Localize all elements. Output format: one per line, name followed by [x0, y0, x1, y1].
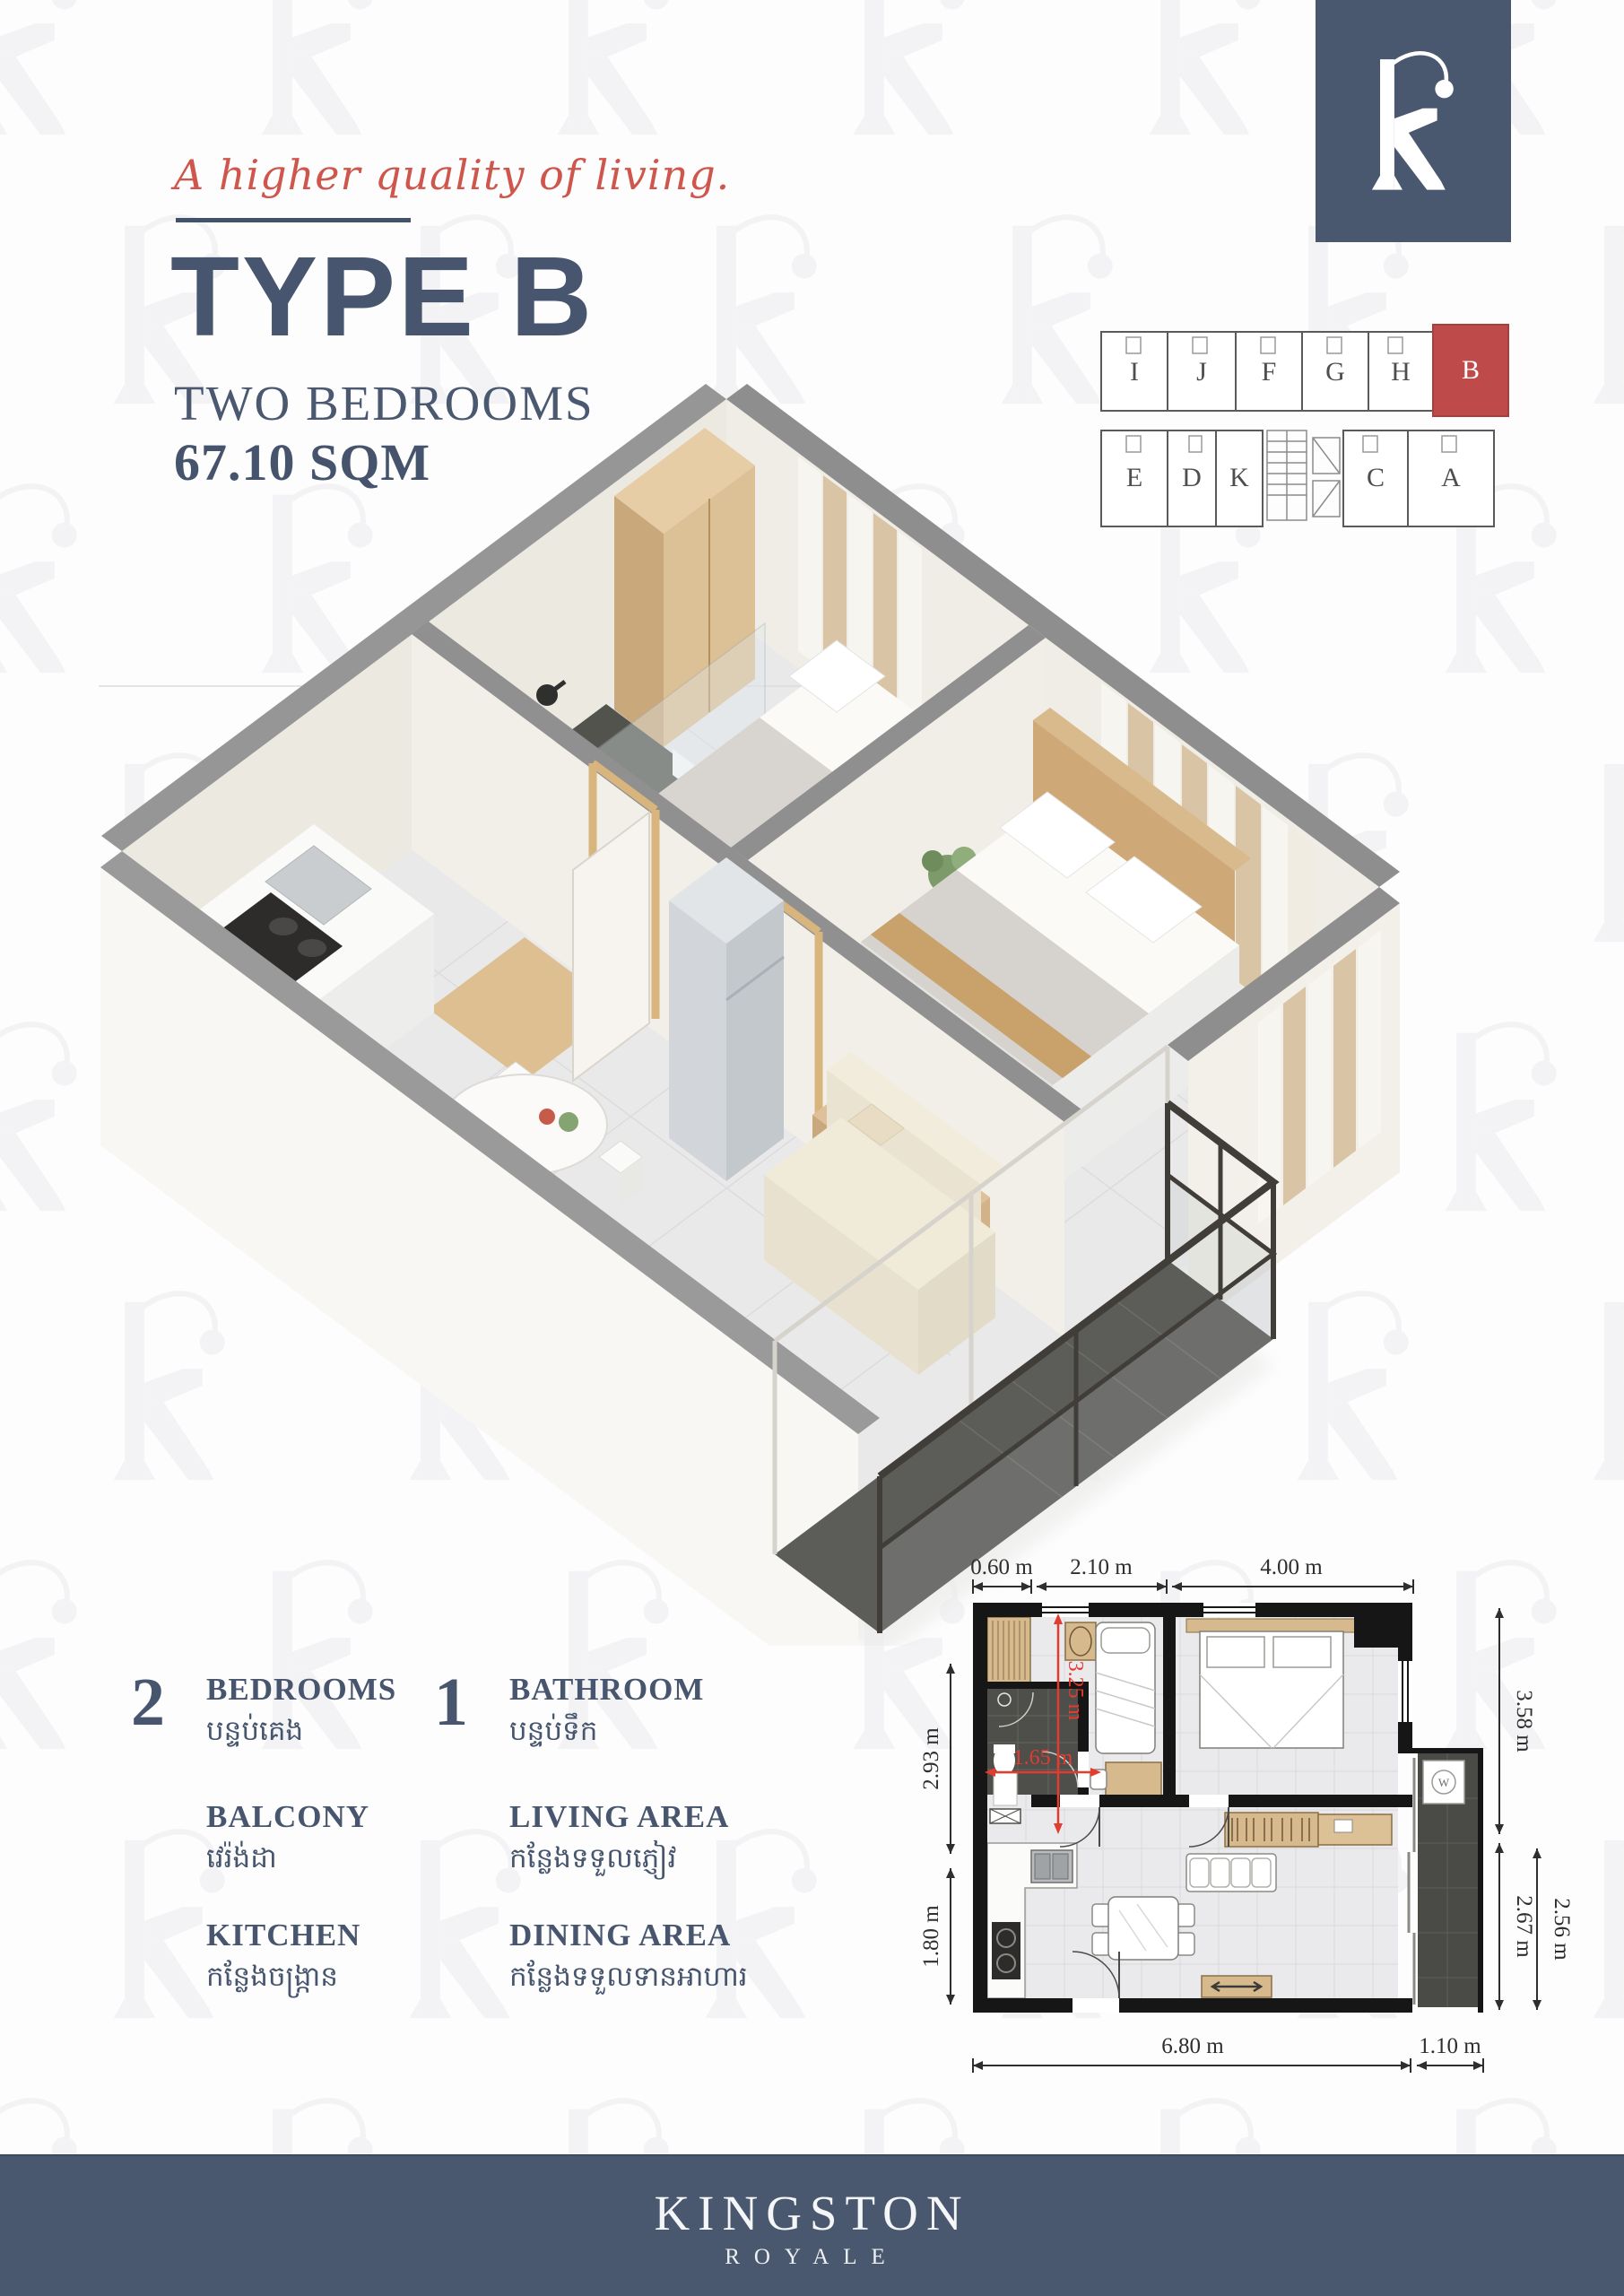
title-divider: [176, 218, 411, 222]
legend-living-area: LIVING AREA កន្លែងទទួលភ្ញៀវ: [434, 1801, 729, 1882]
legend-label: BATHROOM: [509, 1674, 704, 1707]
footer-brand-bar: KINGSTON ROYALE: [0, 2154, 1624, 2296]
legend-label: DINING AREA: [509, 1919, 748, 1952]
dim-right-256: 2.56 m: [1550, 1898, 1574, 1961]
legend-bathroom: 1 BATHROOM បន្ទប់ទឹក: [434, 1674, 704, 1754]
plan-wardrobe: [987, 1617, 1030, 1683]
legend-label: BEDROOMS: [206, 1674, 396, 1707]
legend-label: BALCONY: [206, 1801, 369, 1834]
2d-floor-plan: W: [915, 1556, 1614, 2112]
plan-bedroom1-furniture: [1186, 1619, 1368, 1748]
dim-right-267: 2.67 m: [1512, 1895, 1536, 1958]
legend-count: 2: [131, 1674, 206, 1732]
plan-dims-left: [946, 1664, 955, 2005]
legend-khmer: វេរ៉ង់ដា: [206, 1841, 369, 1882]
dim-top-400: 4.00 m: [1260, 1556, 1323, 1579]
dim-bottom-680: 6.80 m: [1161, 2034, 1224, 2058]
dim-right-358: 3.58 m: [1512, 1690, 1536, 1752]
inner-dim-165: 1.65 m: [1013, 1746, 1073, 1770]
dim-bottom-110: 1.10 m: [1419, 2034, 1481, 2058]
legend-dining-area: DINING AREA កន្លែងទទួលទានអាហារ: [434, 1919, 748, 2000]
brochure-page: A higher quality of living. TYPE B TWO B…: [0, 0, 1624, 2296]
kingston-k-icon: [1358, 43, 1470, 200]
legend-balcony: BALCONY វេរ៉ង់ដា: [131, 1801, 369, 1882]
legend-label: LIVING AREA: [509, 1801, 729, 1834]
isometric-3d-render: [99, 372, 1533, 1646]
legend-khmer: បន្ទប់គេង: [206, 1714, 396, 1754]
dim-left-180: 1.80 m: [919, 1905, 943, 1968]
legend-khmer: បន្ទប់ទឹក: [509, 1714, 704, 1754]
footer-brand-name: KINGSTON: [654, 2185, 969, 2241]
fridge: [669, 857, 784, 1181]
legend-count: 1: [434, 1674, 509, 1732]
washer-label: W: [1438, 1776, 1450, 1789]
dim-top-210: 2.10 m: [1070, 1556, 1133, 1579]
legend-kitchen: KITCHEN កន្លែងចង្ក្រាន: [131, 1919, 360, 2000]
plan-balcony: W: [1418, 1753, 1478, 2007]
legend-khmer: កន្លែងចង្ក្រាន: [206, 1960, 360, 2000]
dim-left-293: 2.93 m: [919, 1727, 943, 1790]
legend-khmer: កន្លែងទទួលភ្ញៀវ: [509, 1841, 729, 1882]
inner-dim-325: 3.25 m: [1064, 1661, 1087, 1721]
tagline: A higher quality of living.: [174, 151, 730, 199]
page-title: TYPE B: [170, 231, 595, 361]
plan-dims-bottom: [973, 2058, 1483, 2073]
kingston-logo-block: [1316, 0, 1511, 242]
dim-top-060: 0.60 m: [970, 1556, 1033, 1579]
legend-label: KITCHEN: [206, 1919, 360, 1952]
legend-bedrooms: 2 BEDROOMS បន្ទប់គេង: [131, 1674, 396, 1754]
plan-dims-top: [973, 1579, 1413, 1594]
footer-brand-sub: ROYALE: [725, 2245, 899, 2270]
legend-khmer: កន្លែងទទួលទានអាហារ: [509, 1960, 748, 2000]
